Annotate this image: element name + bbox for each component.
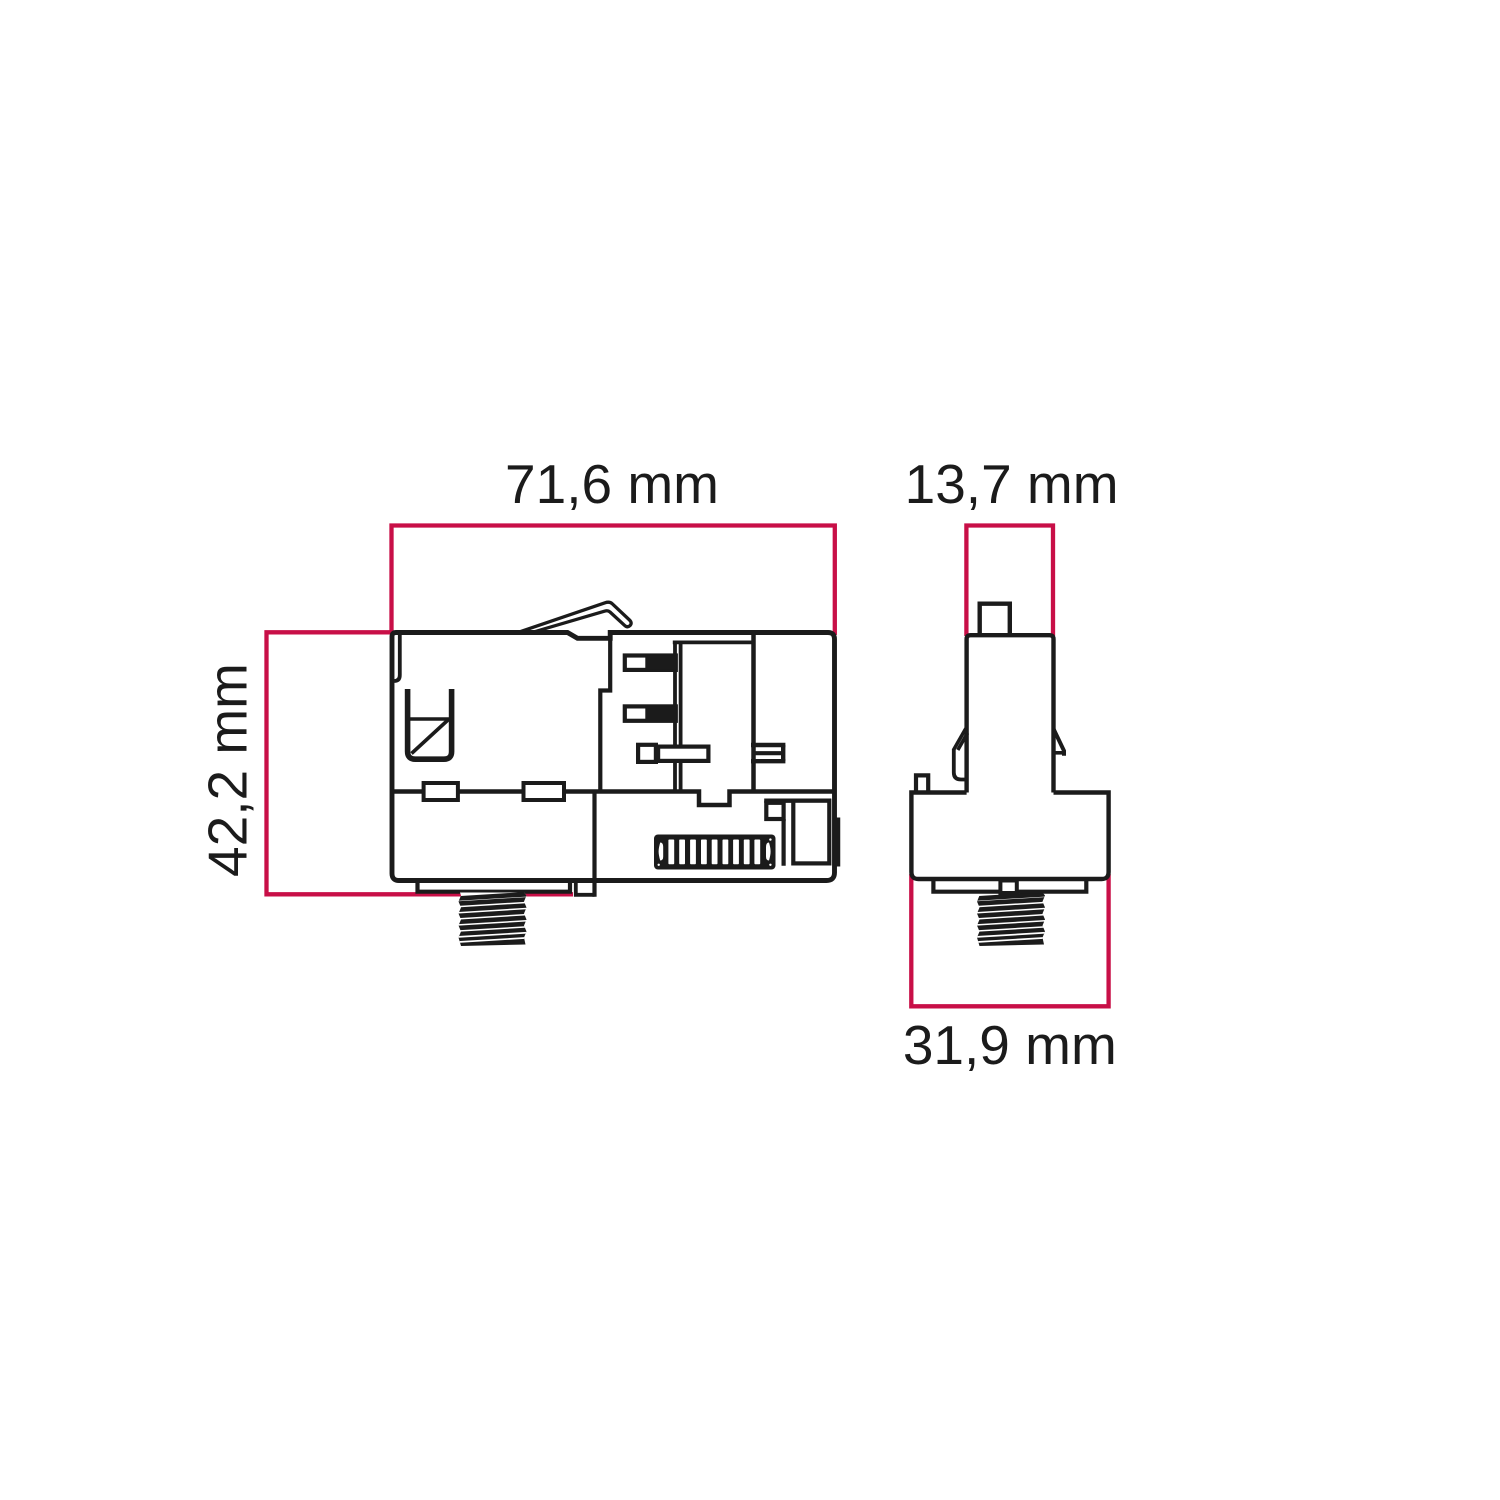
- svg-text:42,2 mm: 42,2 mm: [197, 663, 259, 877]
- svg-text:71,6 mm: 71,6 mm: [505, 453, 719, 515]
- svg-text:31,9 mm: 31,9 mm: [903, 1014, 1117, 1076]
- svg-text:13,7 mm: 13,7 mm: [905, 453, 1119, 515]
